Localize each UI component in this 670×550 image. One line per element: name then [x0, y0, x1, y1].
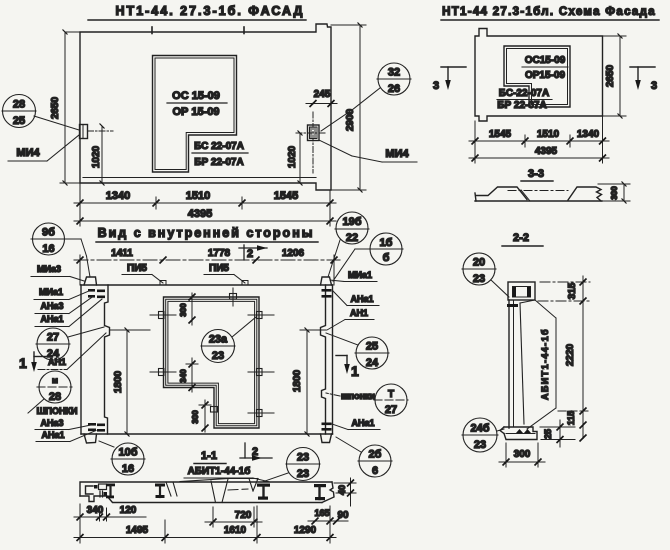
svg-text:19б: 19б [342, 216, 361, 228]
svg-text:315: 315 [567, 282, 578, 299]
svg-text:40: 40 [337, 485, 347, 495]
svg-text:1290: 1290 [294, 525, 317, 536]
svg-text:МИа1: МИа1 [39, 287, 63, 297]
svg-text:25: 25 [543, 429, 553, 439]
svg-text:20: 20 [473, 257, 485, 269]
svg-text:2900: 2900 [345, 108, 356, 131]
svg-text:1510: 1510 [537, 129, 560, 140]
svg-text:БР 22-07А: БР 22-07А [194, 157, 243, 168]
svg-text:2220: 2220 [565, 343, 576, 366]
svg-text:28: 28 [13, 99, 25, 111]
svg-text:1020: 1020 [91, 145, 102, 168]
svg-text:ОС 15-09: ОС 15-09 [172, 90, 220, 102]
svg-text:АНа1: АНа1 [41, 430, 64, 440]
svg-text:АБИТ1-44-1б: АБИТ1-44-1б [540, 328, 550, 400]
svg-text:АН1: АН1 [48, 357, 66, 367]
svg-text:23: 23 [297, 452, 309, 464]
svg-text:МИа1: МИа1 [348, 270, 372, 280]
svg-text:9б: 9б [42, 227, 55, 239]
svg-text:ПИ5: ПИ5 [209, 263, 229, 274]
svg-text:24: 24 [366, 357, 379, 369]
svg-text:Т: Т [388, 389, 394, 400]
svg-text:АНа3: АНа3 [40, 418, 63, 428]
svg-text:22: 22 [346, 232, 358, 244]
svg-text:БС 22-07А: БС 22-07А [194, 141, 244, 152]
svg-text:24б: 24б [470, 423, 489, 435]
svg-text:1610: 1610 [224, 525, 247, 536]
svg-text:МИа3: МИа3 [37, 264, 61, 274]
svg-text:НТ1-44. 27.3-1б. ФАСАД: НТ1-44. 27.3-1б. ФАСАД [116, 4, 305, 18]
svg-text:1340: 1340 [577, 129, 600, 140]
svg-text:АН1: АН1 [350, 308, 368, 318]
svg-text:МИ4: МИ4 [16, 147, 40, 159]
svg-text:340: 340 [179, 369, 188, 383]
svg-text:23: 23 [473, 273, 485, 285]
svg-text:МИ4: МИ4 [385, 148, 409, 160]
svg-text:1545: 1545 [489, 129, 512, 140]
svg-text:2: 2 [252, 446, 258, 458]
svg-text:шпонки: шпонки [341, 391, 375, 401]
svg-text:340: 340 [87, 505, 104, 516]
svg-text:АНа1: АНа1 [351, 418, 374, 428]
svg-text:6: 6 [372, 465, 378, 477]
svg-text:ОР 15-09: ОР 15-09 [172, 106, 219, 118]
svg-text:90: 90 [337, 510, 349, 521]
svg-text:1020: 1020 [287, 145, 298, 168]
svg-text:1510: 1510 [186, 190, 210, 202]
svg-text:1206: 1206 [282, 248, 305, 259]
svg-text:4395: 4395 [535, 146, 558, 157]
svg-text:Вид с внутренней стороны: Вид с внутренней стороны [98, 226, 315, 240]
svg-text:32: 32 [388, 67, 400, 79]
svg-text:ПИ5: ПИ5 [127, 263, 147, 274]
svg-text:16: 16 [42, 243, 54, 255]
svg-text:2650: 2650 [50, 96, 61, 119]
svg-text:23: 23 [212, 350, 224, 362]
svg-text:300: 300 [191, 410, 200, 424]
svg-text:25: 25 [13, 115, 25, 127]
svg-text:26: 26 [388, 83, 400, 95]
svg-text:1-1: 1-1 [201, 450, 217, 462]
svg-text:1800: 1800 [113, 370, 124, 393]
svg-text:БС-22-07А: БС-22-07А [499, 88, 549, 99]
svg-text:115: 115 [566, 411, 576, 426]
svg-text:165: 165 [314, 508, 329, 518]
svg-text:1778: 1778 [208, 248, 231, 259]
svg-text:2-2: 2-2 [513, 232, 529, 244]
svg-text:БР 22-07А: БР 22-07А [497, 100, 546, 111]
svg-text:АНа3: АНа3 [40, 301, 63, 311]
svg-text:1495: 1495 [126, 525, 149, 536]
svg-text:ШПОНКИ: ШПОНКИ [37, 406, 78, 416]
svg-text:АБИТ1-44-1б: АБИТ1-44-1б [188, 465, 251, 477]
svg-text:245: 245 [314, 89, 331, 100]
svg-text:16: 16 [122, 463, 134, 475]
svg-text:3: 3 [433, 80, 439, 92]
svg-text:м: м [52, 376, 58, 385]
svg-text:1411: 1411 [111, 248, 133, 259]
svg-text:25: 25 [366, 341, 378, 353]
svg-text:23: 23 [297, 468, 309, 480]
svg-text:120: 120 [120, 505, 137, 516]
svg-text:АНа1: АНа1 [40, 314, 63, 324]
svg-text:ОС15-09: ОС15-09 [525, 55, 566, 66]
svg-text:3: 3 [651, 80, 657, 92]
svg-text:2: 2 [247, 248, 253, 260]
svg-text:23а: 23а [209, 334, 228, 346]
svg-text:2650: 2650 [605, 64, 616, 87]
svg-text:АНа1: АНа1 [350, 294, 373, 304]
svg-text:23: 23 [474, 439, 486, 451]
svg-text:300: 300 [514, 449, 531, 460]
svg-text:1340: 1340 [106, 190, 130, 202]
svg-text:27: 27 [385, 404, 397, 416]
svg-text:б: б [383, 252, 390, 264]
svg-text:НТ1-44 27.3-1бл. Схема Фасада: НТ1-44 27.3-1бл. Схема Фасада [442, 6, 656, 18]
svg-text:3-3: 3-3 [528, 168, 544, 180]
svg-text:300: 300 [179, 303, 188, 317]
svg-text:300: 300 [610, 186, 619, 200]
svg-text:1800: 1800 [292, 369, 303, 392]
svg-text:4395: 4395 [188, 208, 212, 220]
svg-text:10б: 10б [118, 447, 137, 459]
svg-text:1: 1 [351, 363, 359, 379]
svg-text:1: 1 [19, 355, 27, 371]
svg-text:2б: 2б [369, 449, 382, 461]
svg-text:27: 27 [47, 332, 59, 344]
svg-text:28: 28 [49, 391, 61, 403]
svg-text:1545: 1545 [274, 190, 298, 202]
svg-text:720: 720 [235, 510, 252, 521]
svg-text:ОР15-09: ОР15-09 [525, 70, 565, 81]
svg-text:1б: 1б [380, 237, 393, 249]
